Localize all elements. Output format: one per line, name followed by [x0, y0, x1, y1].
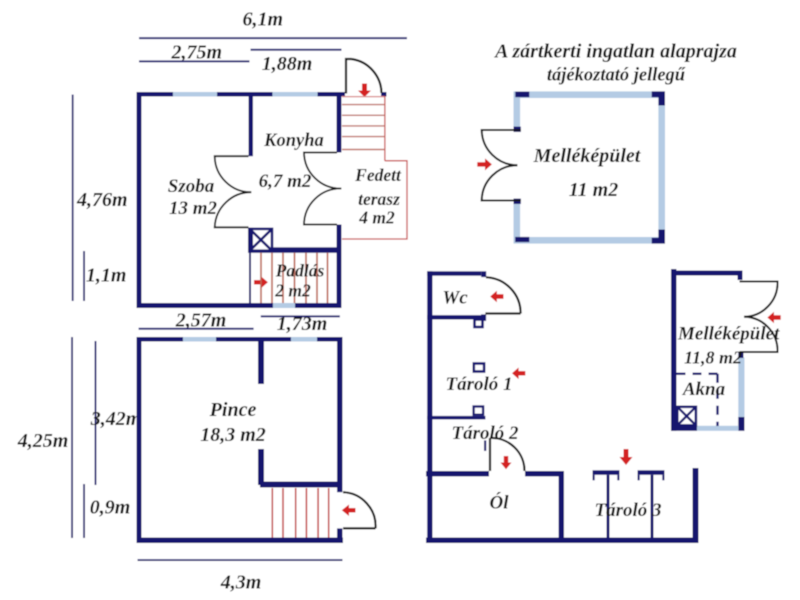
svg-text:3,42m: 3,42m [90, 408, 142, 430]
svg-text:Szoba: Szoba [168, 176, 215, 197]
svg-text:Wc: Wc [442, 288, 468, 309]
svg-text:tájékoztató jellegű: tájékoztató jellegű [547, 66, 686, 86]
svg-text:4 m2: 4 m2 [358, 208, 395, 228]
svg-text:2,75m: 2,75m [171, 41, 223, 63]
svg-text:terasz: terasz [358, 189, 400, 209]
svg-text:Akna: Akna [682, 379, 726, 400]
svg-text:Tároló 1: Tároló 1 [445, 374, 512, 395]
svg-text:18,3 m2: 18,3 m2 [200, 424, 266, 446]
svg-text:A zártkerti ingatlan alaprajza: A zártkerti ingatlan alaprajza [493, 41, 737, 63]
svg-text:13 m2: 13 m2 [169, 198, 218, 219]
svg-text:Tároló 3: Tároló 3 [594, 500, 661, 521]
svg-text:11 m2: 11 m2 [569, 179, 618, 201]
svg-text:6,7 m2: 6,7 m2 [259, 171, 312, 192]
svg-text:Padlás: Padlás [275, 261, 325, 281]
svg-text:11,8 m2: 11,8 m2 [684, 348, 742, 368]
svg-text:Ól: Ól [490, 492, 510, 514]
svg-text:2 m2: 2 m2 [274, 281, 311, 301]
svg-text:Pince: Pince [209, 399, 257, 421]
svg-text:Fedett: Fedett [354, 165, 402, 185]
svg-text:1,73m: 1,73m [277, 313, 328, 335]
svg-text:1,1m: 1,1m [86, 265, 127, 287]
svg-text:4,25m: 4,25m [17, 430, 69, 452]
svg-text:Melléképület: Melléképület [677, 324, 780, 345]
svg-text:4,76m: 4,76m [76, 189, 128, 211]
svg-text:0,9m: 0,9m [90, 497, 131, 519]
svg-text:Melléképület: Melléképület [533, 145, 642, 167]
svg-text:1,88m: 1,88m [262, 53, 313, 75]
svg-text:4,3m: 4,3m [220, 572, 262, 594]
svg-text:6,1m: 6,1m [243, 9, 284, 31]
svg-text:Konyha: Konyha [263, 131, 324, 151]
